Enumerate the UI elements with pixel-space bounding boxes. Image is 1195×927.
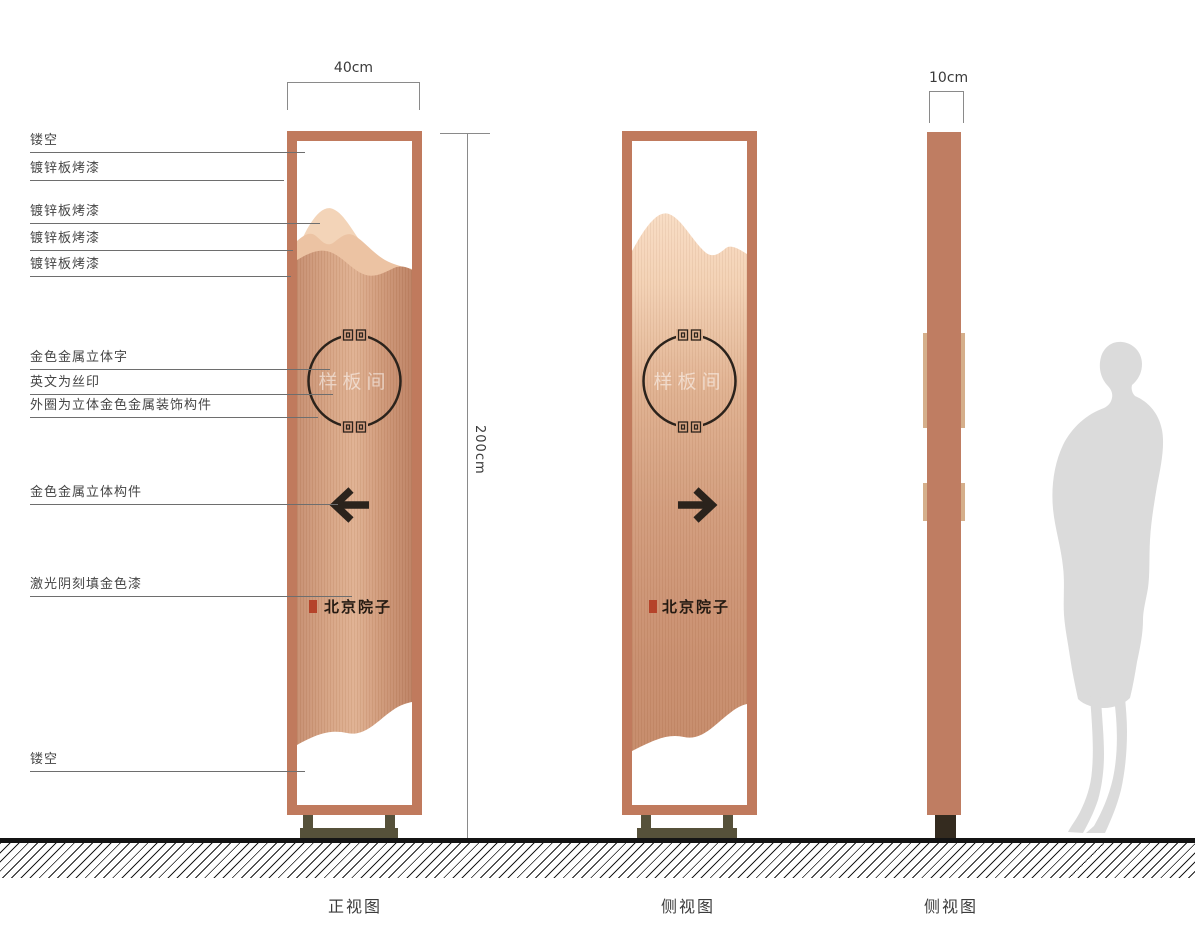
- annotation-gold-letters: 金色金属立体字: [30, 350, 330, 370]
- pillar-side-view: 样板间 北京院子: [622, 131, 757, 815]
- annotation-label: 镂空: [30, 133, 305, 152]
- ground-line: [0, 838, 1195, 843]
- room-name-text: 样板间: [653, 371, 725, 393]
- annotation-laser-engrave: 激光阴刻填金色漆: [30, 577, 352, 597]
- base-bar: [300, 828, 398, 838]
- annotation-label: 镀锌板烤漆: [30, 231, 293, 250]
- dimension-height: 200cm: [472, 425, 487, 475]
- brand-calligraphy: 北京院子: [324, 598, 392, 616]
- view-label-front: 正视图: [328, 893, 382, 917]
- annotation-label: 外圈为立体金色金属装饰构件: [30, 398, 318, 417]
- brand-seal-icon: [649, 600, 657, 613]
- annotation-hollow-top: 镂空: [30, 133, 305, 153]
- brand-seal-icon: [309, 600, 317, 613]
- ring-ornament-top-icon: [676, 329, 703, 341]
- ground-hatching: [0, 843, 1195, 878]
- pillar-profile-view: [927, 132, 961, 815]
- annotation-silkscreen: 英文为丝印: [30, 375, 333, 395]
- ring-ornament-top-icon: [341, 329, 368, 341]
- human-scale-silhouette: [1038, 340, 1178, 840]
- ring-ornament-bottom-icon: [676, 421, 703, 433]
- pillar-front-view: 样板间 北京院子: [287, 131, 422, 815]
- annotation-label: 镀锌板烤漆: [30, 161, 284, 180]
- view-label-side1: 侧视图: [661, 893, 715, 917]
- annotation-gold-component: 金色金属立体构件: [30, 485, 338, 505]
- annotation-galvanized-2: 镀锌板烤漆: [30, 204, 320, 224]
- annotation-outer-ring: 外圈为立体金色金属装饰构件: [30, 398, 318, 418]
- annotation-label: 镀锌板烤漆: [30, 204, 320, 223]
- signage-spec-sheet: 镂空 镀锌板烤漆 镀锌板烤漆 镀锌板烤漆 镀锌板烤漆 金色金属立体字 英文为丝印…: [0, 0, 1195, 927]
- annotation-galvanized-1: 镀锌板烤漆: [30, 161, 284, 181]
- dimension-line-height: [467, 133, 468, 838]
- ring-ornament-bottom-icon: [341, 421, 368, 433]
- pillar-side-art: 样板间 北京院子: [632, 141, 747, 805]
- dimension-bracket-side: [929, 91, 964, 123]
- annotation-label: 镀锌板烤漆: [30, 257, 291, 276]
- silhouette-left-leg: [1068, 696, 1104, 833]
- brand-calligraphy: 北京院子: [662, 598, 730, 616]
- pillar-front-art: 样板间 北京院子: [297, 141, 412, 805]
- silhouette-body: [1052, 342, 1163, 708]
- dimension-side-width: 10cm: [929, 70, 964, 86]
- annotation-galvanized-3: 镀锌板烤漆: [30, 231, 293, 251]
- annotation-label: 激光阴刻填金色漆: [30, 577, 352, 596]
- annotation-label: 英文为丝印: [30, 375, 333, 394]
- dimension-front-width: 40cm: [287, 60, 420, 76]
- annotation-label: 金色金属立体字: [30, 350, 330, 369]
- dimension-tick-top: [440, 133, 490, 134]
- base-bar: [637, 828, 737, 838]
- annotation-galvanized-4: 镀锌板烤漆: [30, 257, 291, 277]
- annotation-label: 金色金属立体构件: [30, 485, 338, 504]
- view-label-side2: 侧视图: [924, 893, 978, 917]
- profile-foot: [935, 813, 956, 839]
- profile-body: [927, 132, 961, 815]
- annotation-hollow-bottom: 镂空: [30, 752, 305, 772]
- annotation-label: 镂空: [30, 752, 305, 771]
- dimension-bracket-front: [287, 82, 420, 110]
